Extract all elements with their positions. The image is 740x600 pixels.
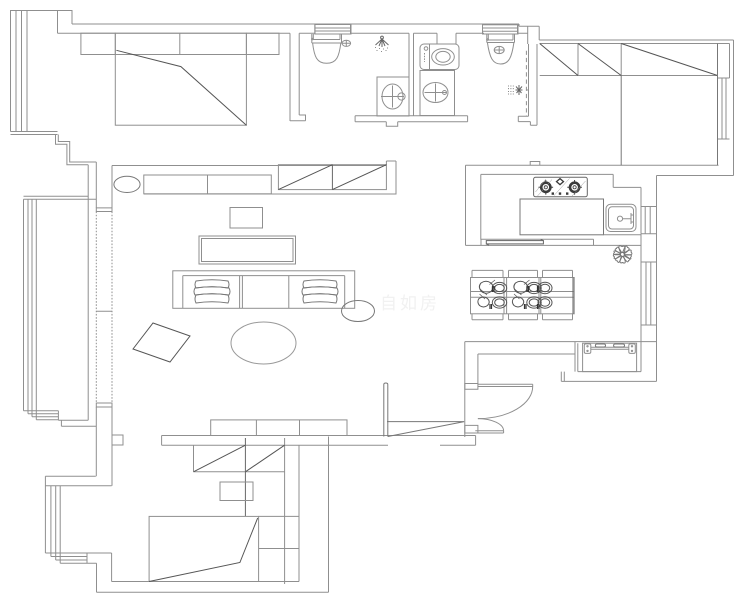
- svg-text:自如房: 自如房: [380, 294, 440, 313]
